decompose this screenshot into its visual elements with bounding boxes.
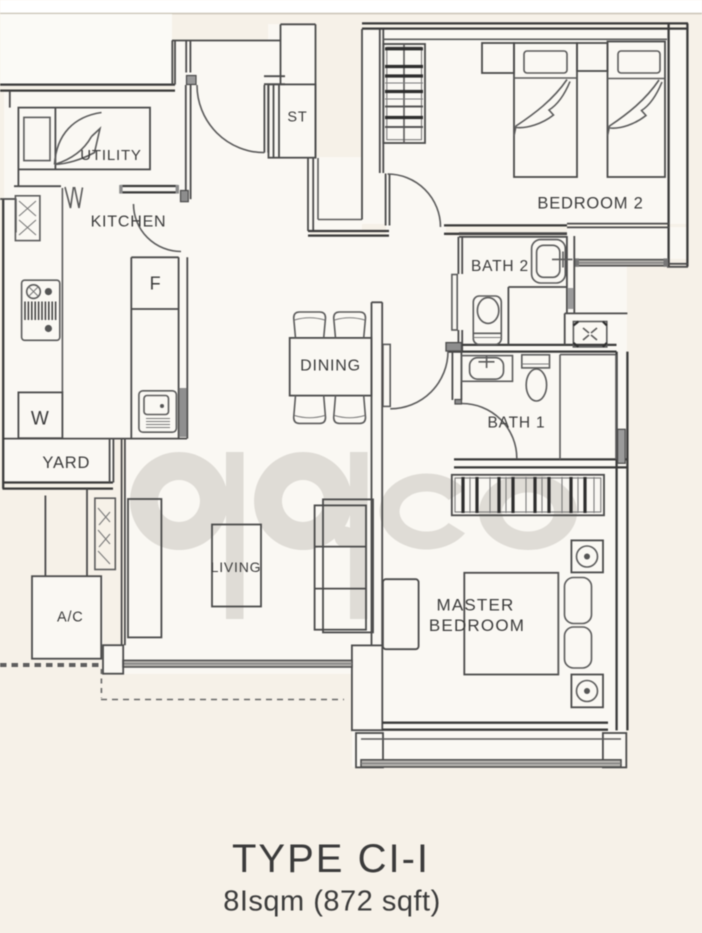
svg-text:MASTER: MASTER bbox=[436, 596, 514, 615]
svg-text:F: F bbox=[150, 274, 162, 294]
svg-text:YARD: YARD bbox=[42, 454, 90, 472]
svg-text:ST: ST bbox=[287, 110, 307, 126]
svg-text:DINING: DINING bbox=[300, 358, 361, 375]
svg-text:LIVING: LIVING bbox=[211, 559, 262, 575]
svg-text:BATH 1: BATH 1 bbox=[488, 415, 546, 432]
svg-text:BEDROOM: BEDROOM bbox=[429, 616, 525, 635]
svg-text:W: W bbox=[31, 409, 50, 430]
svg-text:A/C: A/C bbox=[57, 610, 84, 626]
svg-text:BATH 2: BATH 2 bbox=[471, 258, 529, 275]
svg-text:KITCHEN: KITCHEN bbox=[91, 214, 167, 231]
svg-text:UTILITY: UTILITY bbox=[80, 147, 141, 164]
svg-text:8Isqm (872 sqft): 8Isqm (872 sqft) bbox=[223, 886, 441, 918]
svg-text:BEDROOM 2: BEDROOM 2 bbox=[537, 195, 643, 213]
svg-text:TYPE CI-I: TYPE CI-I bbox=[232, 837, 430, 881]
